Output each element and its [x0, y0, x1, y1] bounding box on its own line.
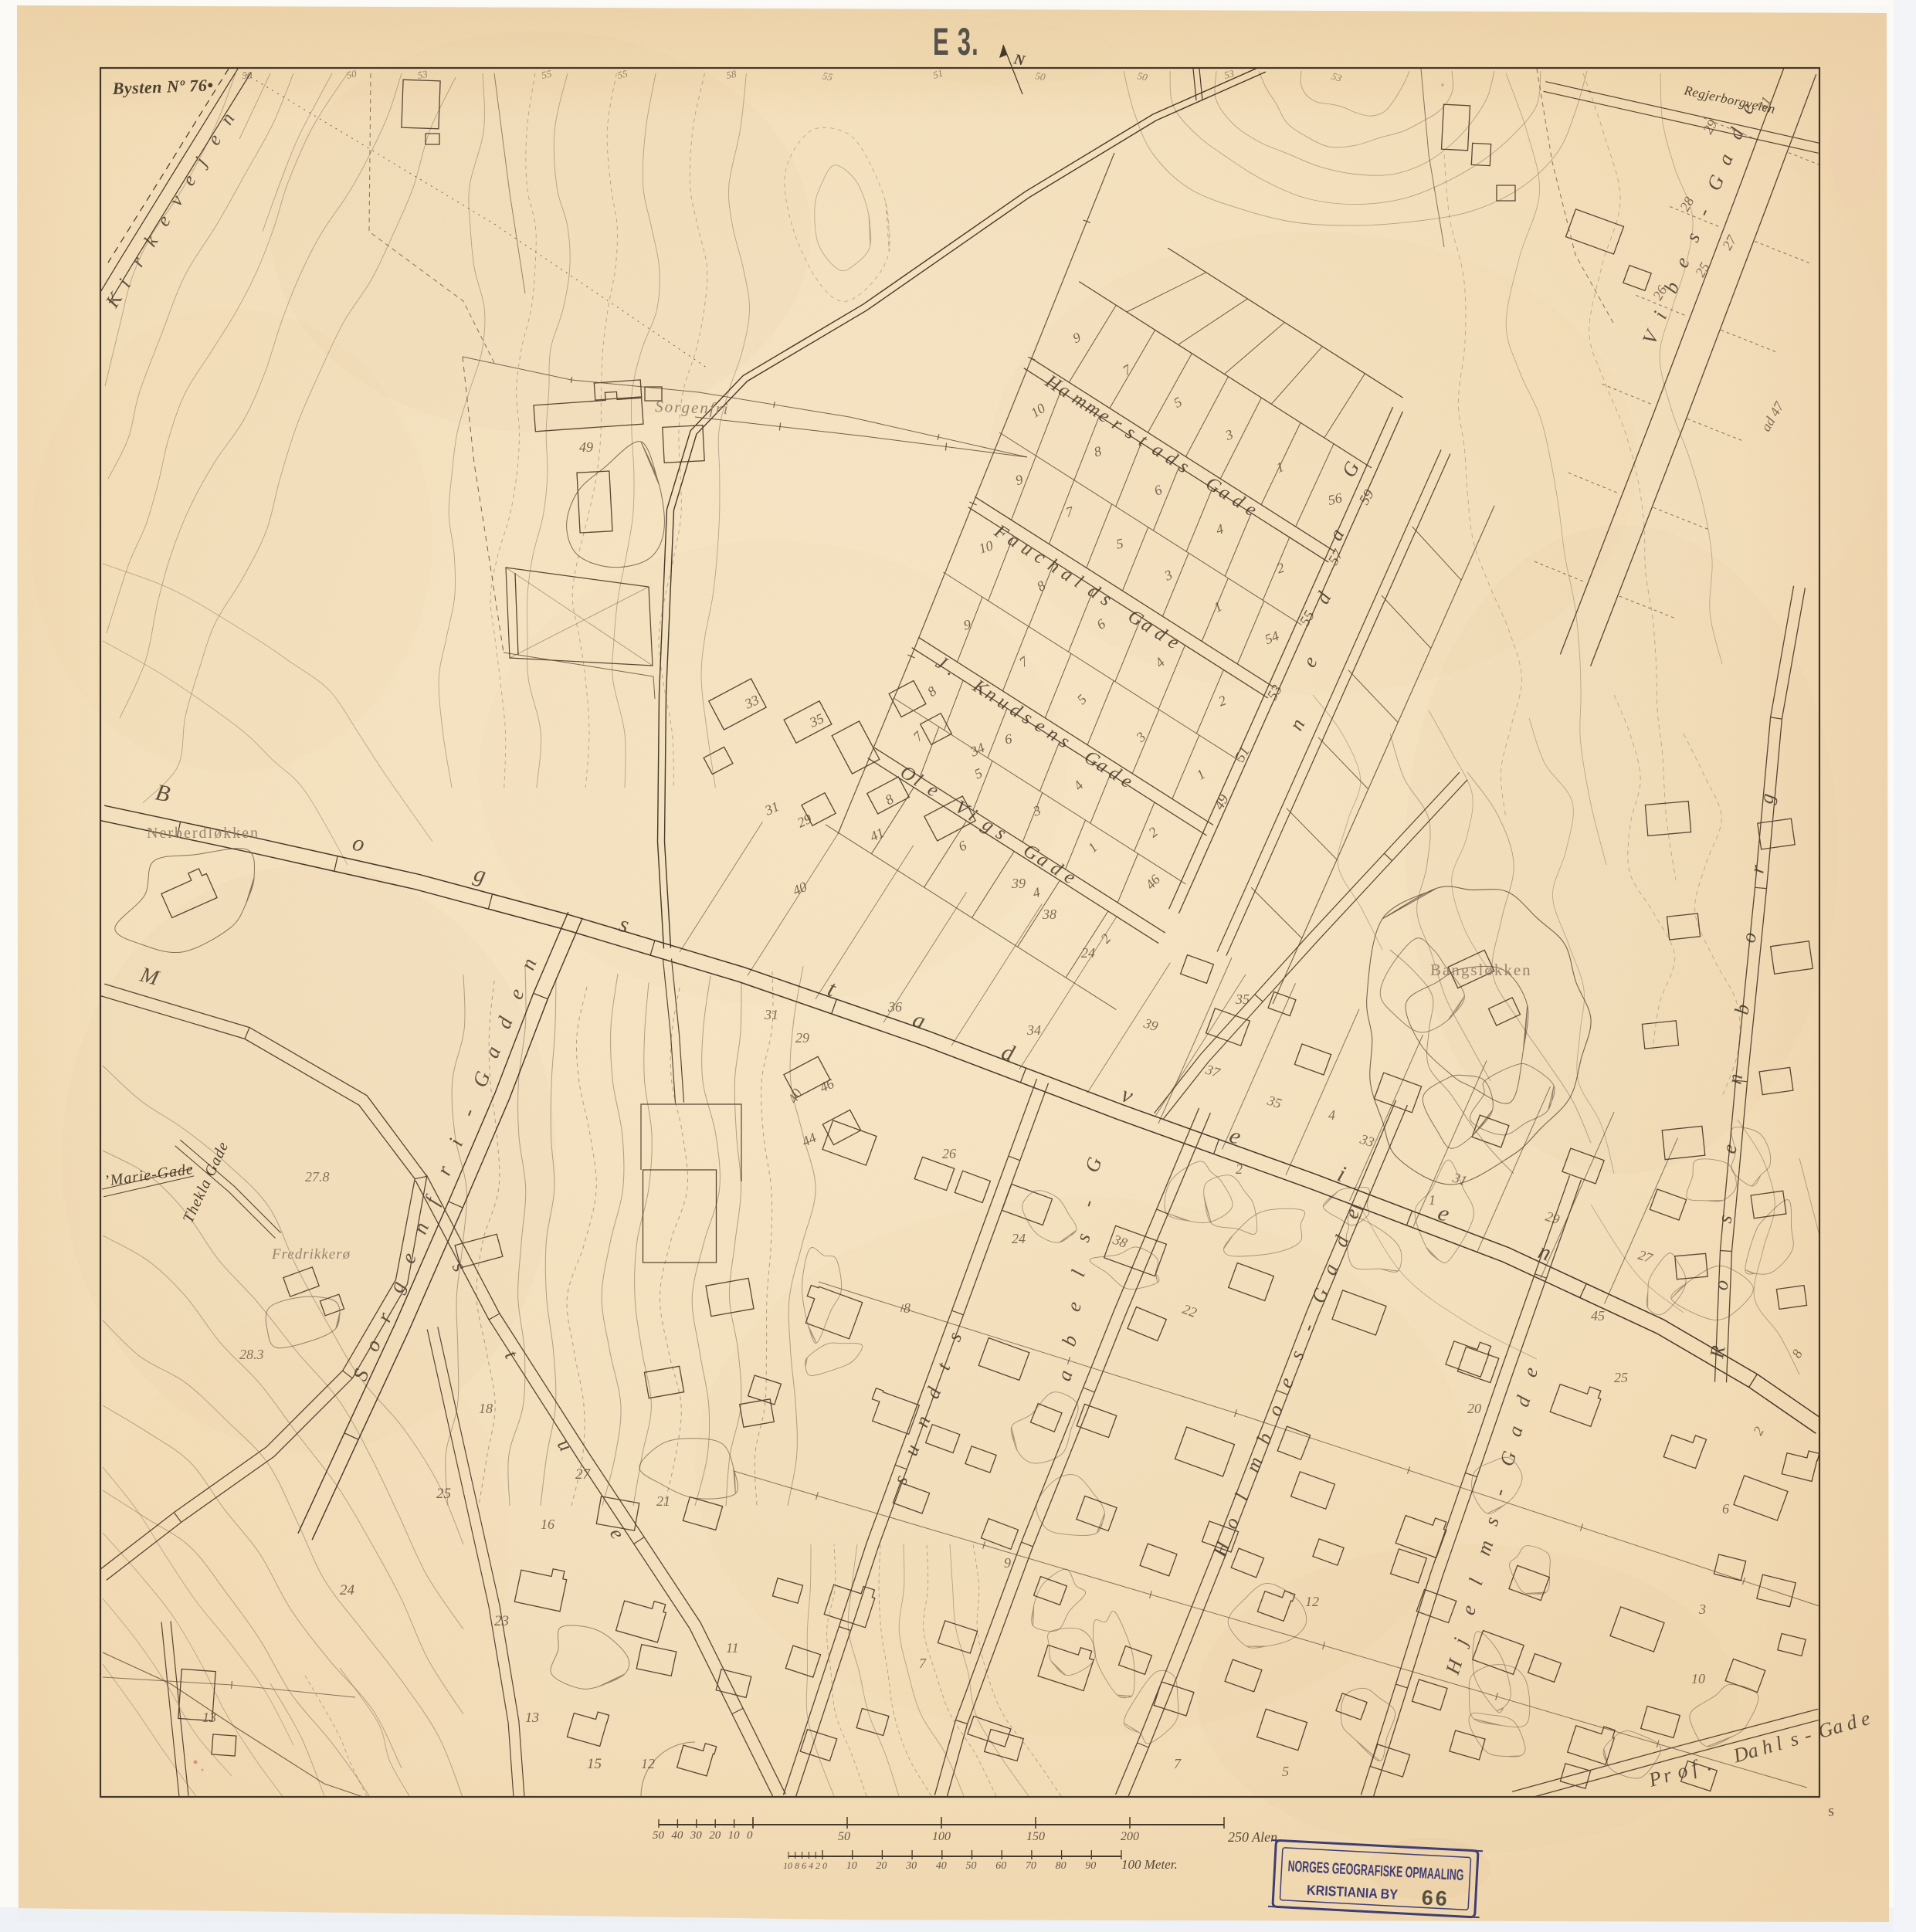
svg-text:13: 13 — [525, 1710, 539, 1725]
svg-text:E 3.: E 3. — [933, 20, 979, 63]
svg-text:23: 23 — [494, 1613, 509, 1629]
svg-text:24: 24 — [1012, 1231, 1026, 1246]
svg-text:39: 39 — [1011, 876, 1026, 891]
svg-text:49: 49 — [579, 439, 593, 455]
svg-text:100: 100 — [932, 1830, 951, 1843]
svg-text:200: 200 — [1121, 1830, 1139, 1843]
svg-text:40: 40 — [671, 1829, 683, 1842]
svg-text:27.8: 27.8 — [305, 1169, 330, 1185]
svg-text:66: 66 — [1421, 1886, 1450, 1910]
svg-text:7: 7 — [1174, 1756, 1182, 1771]
svg-text:24: 24 — [340, 1582, 355, 1598]
svg-text:18: 18 — [479, 1401, 493, 1416]
svg-text:8: 8 — [904, 1300, 911, 1316]
svg-text:15: 15 — [587, 1756, 602, 1772]
svg-text:26: 26 — [942, 1146, 956, 1161]
svg-text:4: 4 — [1328, 1107, 1335, 1123]
svg-text:16: 16 — [541, 1517, 554, 1532]
svg-text:34: 34 — [1026, 1022, 1041, 1038]
svg-text:36: 36 — [887, 999, 902, 1015]
svg-text:29: 29 — [795, 1030, 809, 1046]
svg-text:100 Meter.: 100 Meter. — [1121, 1857, 1178, 1872]
svg-text:10 8 6 4 2 0: 10 8 6 4 2 0 — [783, 1860, 827, 1871]
svg-text:40: 40 — [936, 1860, 947, 1872]
svg-text:21: 21 — [656, 1493, 670, 1509]
svg-text:50: 50 — [838, 1830, 850, 1843]
svg-text:3: 3 — [1698, 1602, 1706, 1617]
svg-text:60: 60 — [995, 1860, 1006, 1872]
svg-text:27: 27 — [575, 1466, 592, 1483]
svg-text:25: 25 — [1614, 1370, 1628, 1385]
svg-text:12: 12 — [641, 1756, 655, 1771]
svg-text:10: 10 — [846, 1860, 857, 1872]
svg-text:12: 12 — [1305, 1594, 1319, 1609]
svg-text:10: 10 — [1691, 1671, 1705, 1686]
svg-text:0: 0 — [747, 1829, 753, 1842]
svg-text:50: 50 — [242, 69, 253, 81]
svg-text:70: 70 — [1026, 1860, 1036, 1872]
svg-text:13: 13 — [202, 1710, 216, 1725]
svg-text:45: 45 — [1591, 1308, 1605, 1324]
svg-text:20: 20 — [1467, 1401, 1481, 1416]
svg-text:10: 10 — [728, 1829, 741, 1842]
svg-text:50: 50 — [653, 1829, 665, 1842]
svg-text:250 Alen.: 250 Alen. — [1228, 1829, 1281, 1845]
svg-text:25: 25 — [436, 1486, 451, 1502]
svg-text:20: 20 — [876, 1860, 887, 1872]
svg-text:150: 150 — [1026, 1830, 1045, 1843]
svg-text:11: 11 — [726, 1640, 739, 1656]
svg-text:38: 38 — [1042, 907, 1056, 922]
svg-text:1: 1 — [1429, 1192, 1436, 1208]
svg-text:20: 20 — [709, 1829, 721, 1842]
svg-text:Nerberdløkken: Nerberdløkken — [147, 825, 259, 842]
svg-text:30: 30 — [690, 1829, 703, 1842]
svg-text:31: 31 — [764, 1007, 778, 1022]
svg-text:Fredrikkerø: Fredrikkerø — [271, 1246, 351, 1263]
svg-text:Bangsløkken: Bangsløkken — [1430, 961, 1532, 979]
svg-text:2: 2 — [1236, 1161, 1243, 1177]
svg-text:9: 9 — [1004, 1555, 1011, 1571]
svg-text:Sorgenfri: Sorgenfri — [655, 397, 730, 418]
svg-text:7: 7 — [919, 1656, 927, 1671]
svg-text:90: 90 — [1085, 1860, 1096, 1872]
svg-text:80: 80 — [1056, 1860, 1067, 1872]
svg-text:6: 6 — [1722, 1501, 1729, 1517]
svg-text:24: 24 — [1081, 945, 1095, 961]
svg-text:30: 30 — [905, 1860, 917, 1872]
svg-text:35: 35 — [1235, 991, 1250, 1007]
svg-text:50: 50 — [966, 1860, 977, 1872]
svg-text:Bysten Nº 76•: Bysten Nº 76• — [111, 75, 214, 98]
svg-text:28.3: 28.3 — [239, 1347, 264, 1362]
svg-text:5: 5 — [1282, 1764, 1289, 1779]
